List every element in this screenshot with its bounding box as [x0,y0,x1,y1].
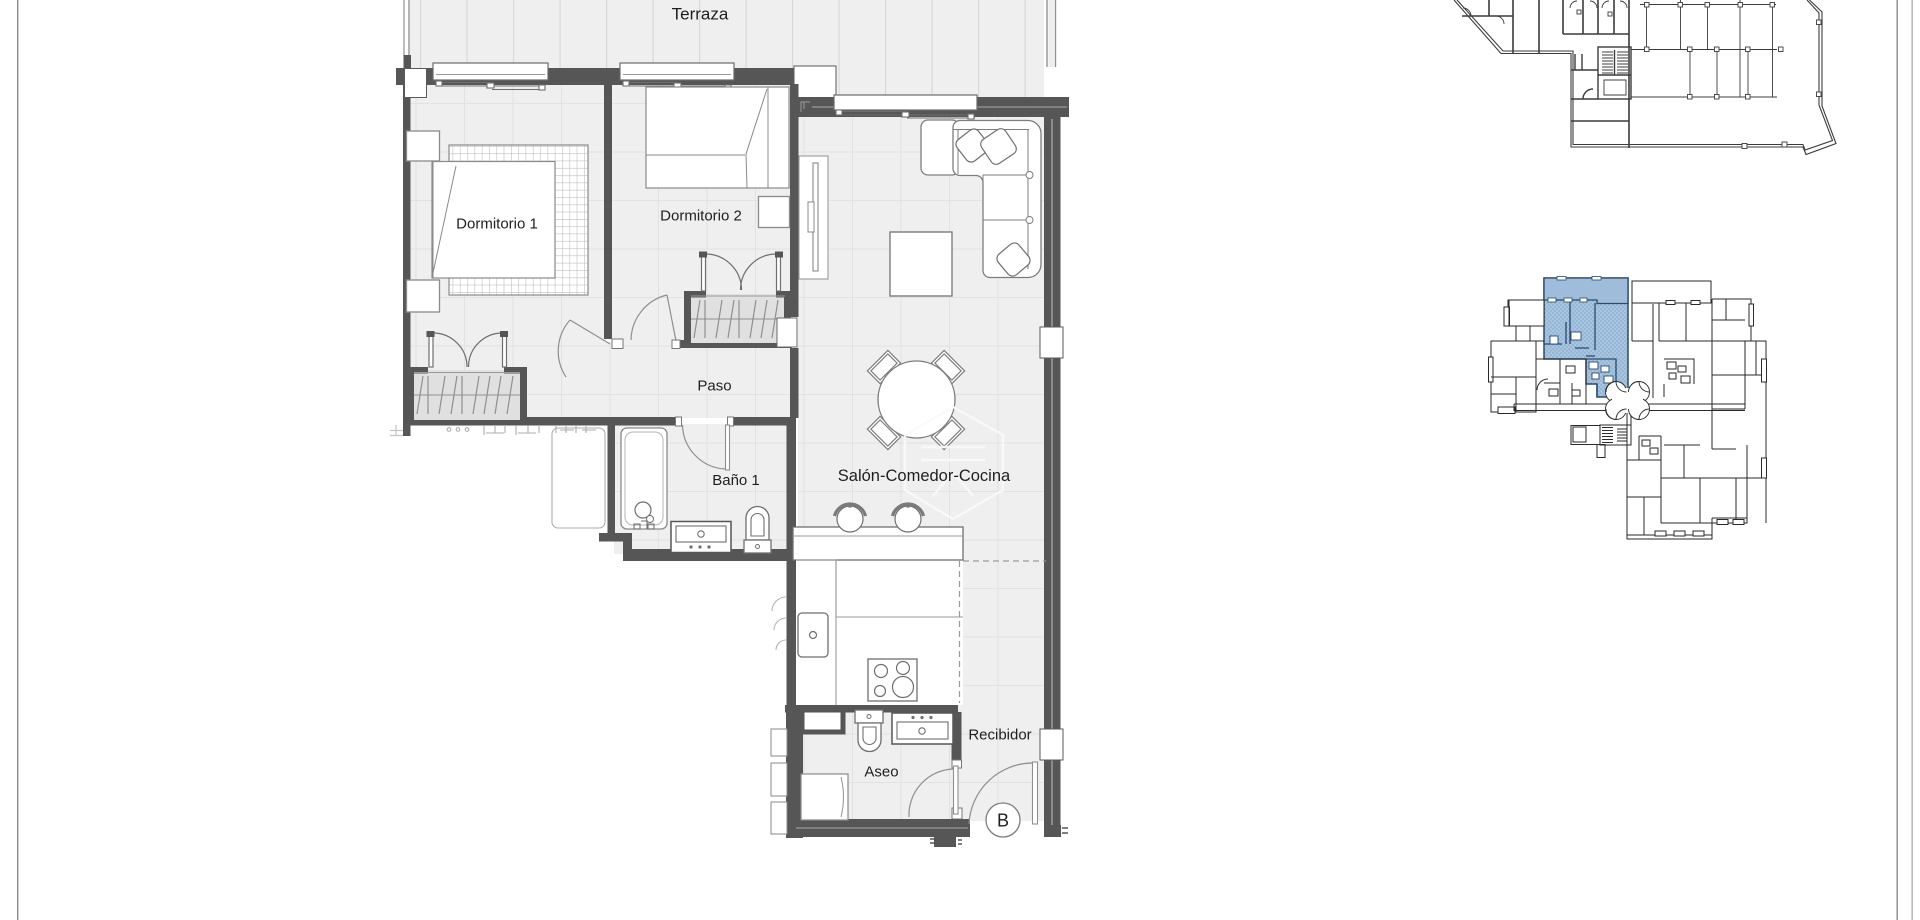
svg-text:Paso: Paso [697,378,731,395]
svg-text:Aseo: Aseo [864,764,898,781]
svg-text:Recibidor: Recibidor [968,727,1031,744]
svg-text:Dormitorio 1: Dormitorio 1 [456,216,538,233]
svg-text:Terraza: Terraza [672,5,729,24]
svg-text:Dormitorio 2: Dormitorio 2 [660,208,742,225]
svg-text:Salón-Comedor-Cocina: Salón-Comedor-Cocina [838,467,1011,485]
svg-text:B: B [997,811,1009,831]
svg-text:Baño 1: Baño 1 [712,472,760,489]
